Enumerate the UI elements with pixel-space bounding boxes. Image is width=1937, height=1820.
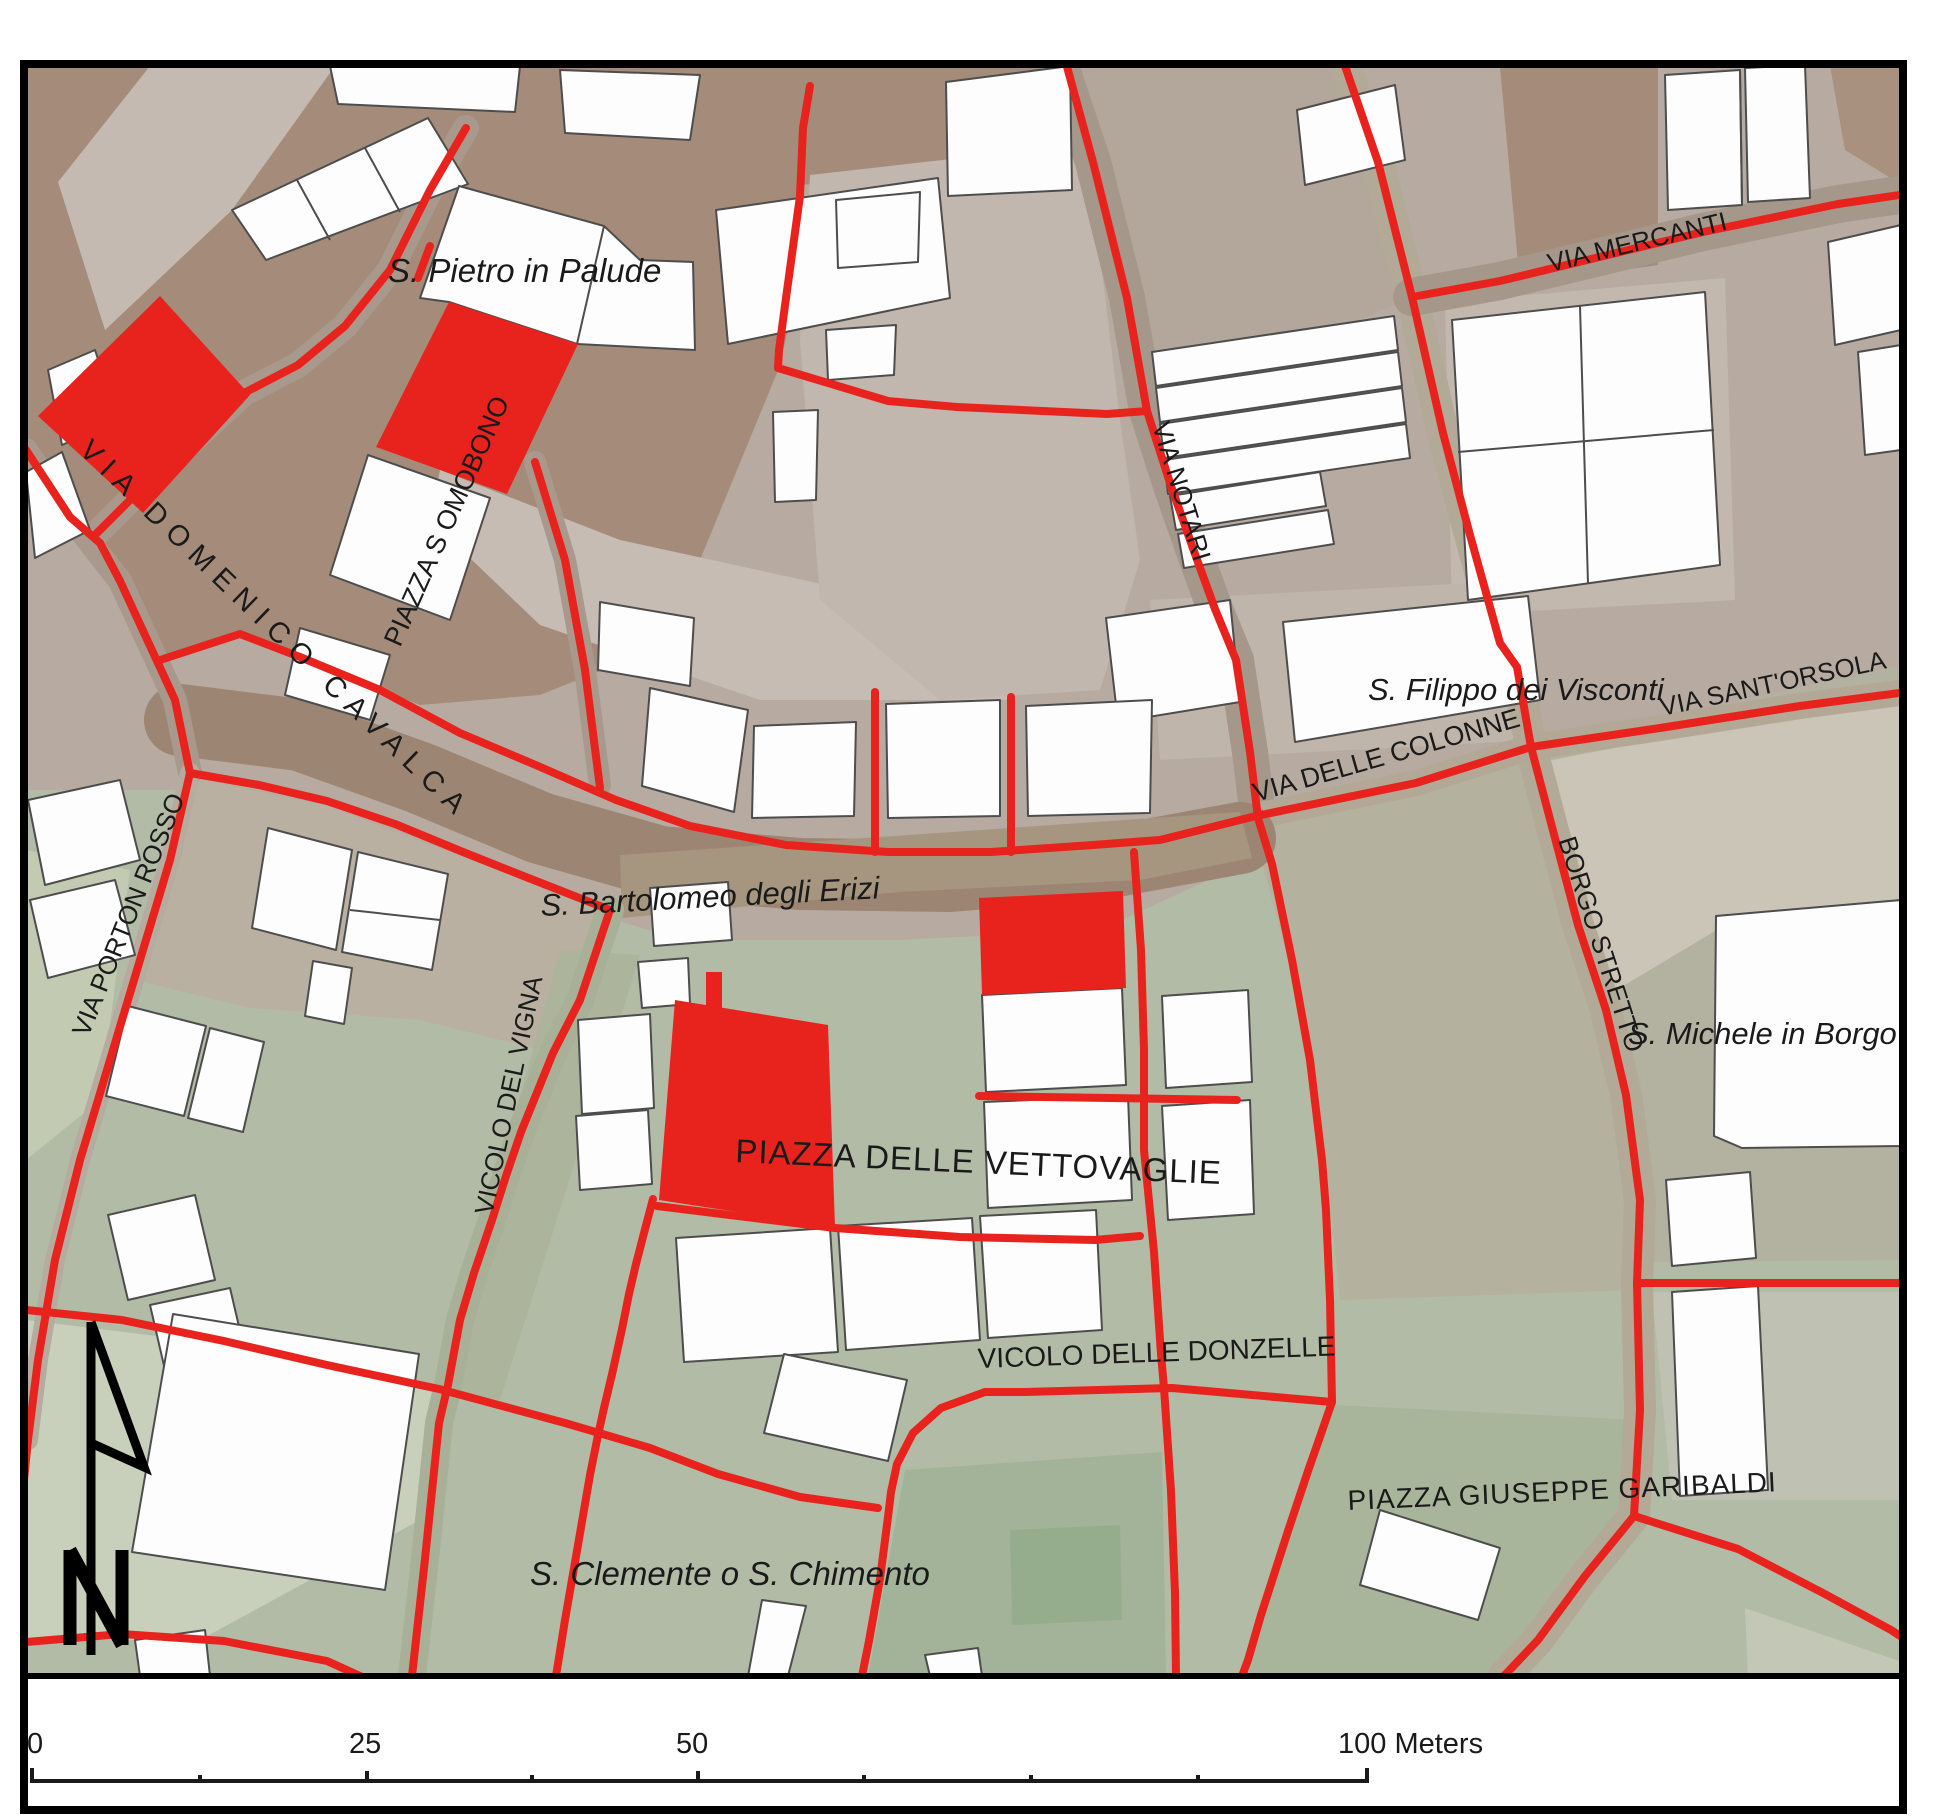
svg-text:S. Clemente o S. Chimento: S. Clemente o S. Chimento xyxy=(530,1555,930,1592)
svg-text:0: 0 xyxy=(27,1728,43,1760)
svg-text:S. Michele in Borgo: S. Michele in Borgo xyxy=(1628,1016,1897,1051)
svg-text:100 Meters: 100 Meters xyxy=(1338,1728,1483,1760)
svg-text:S. Pietro in Palude: S. Pietro in Palude xyxy=(388,252,661,289)
svg-text:25: 25 xyxy=(349,1728,381,1760)
svg-text:50: 50 xyxy=(676,1728,708,1760)
svg-text:S. Filippo dei Visconti: S. Filippo dei Visconti xyxy=(1368,672,1665,707)
